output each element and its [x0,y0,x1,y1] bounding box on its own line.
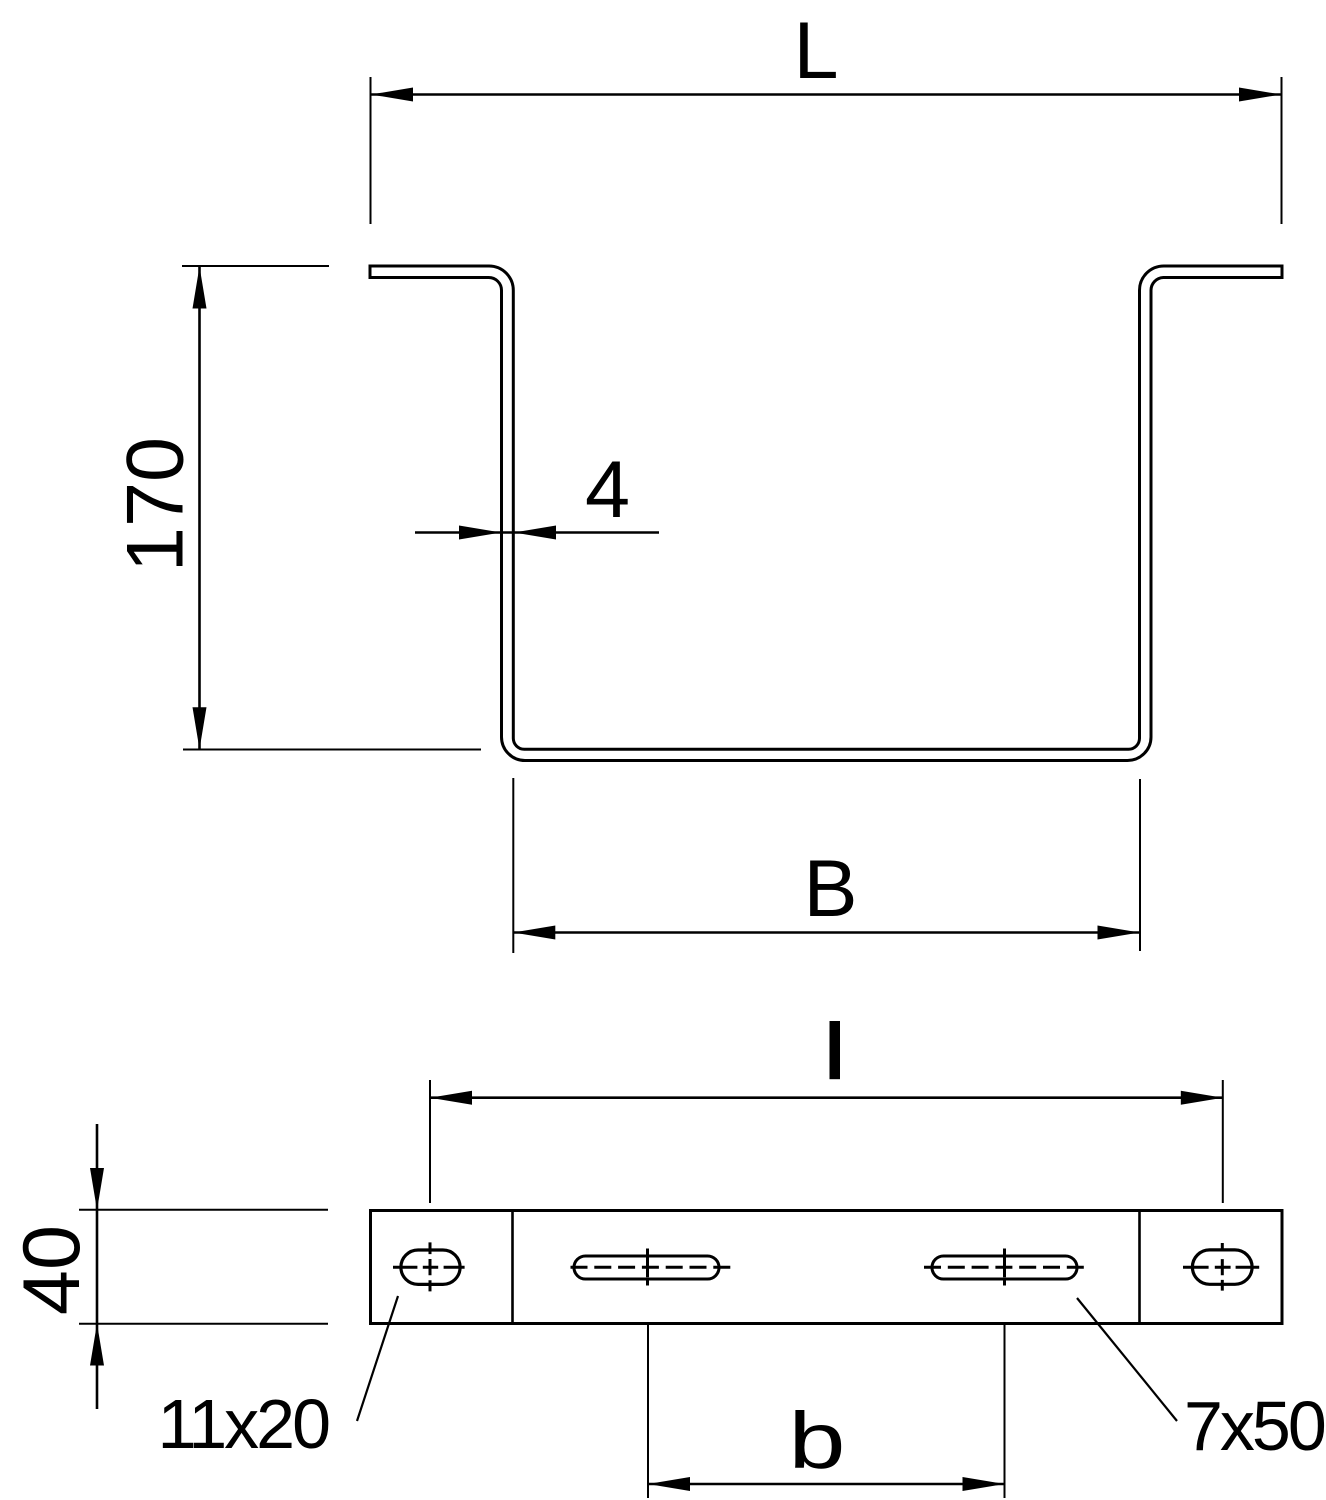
svg-text:4: 4 [585,445,630,535]
svg-text:40: 40 [7,1225,97,1315]
svg-text:7x50: 7x50 [1184,1387,1325,1465]
svg-text:L: L [793,6,838,96]
svg-text:11x20: 11x20 [158,1385,330,1463]
svg-text:b: b [789,1397,846,1486]
svg-text:170: 170 [111,437,201,572]
svg-text:B: B [803,844,857,934]
